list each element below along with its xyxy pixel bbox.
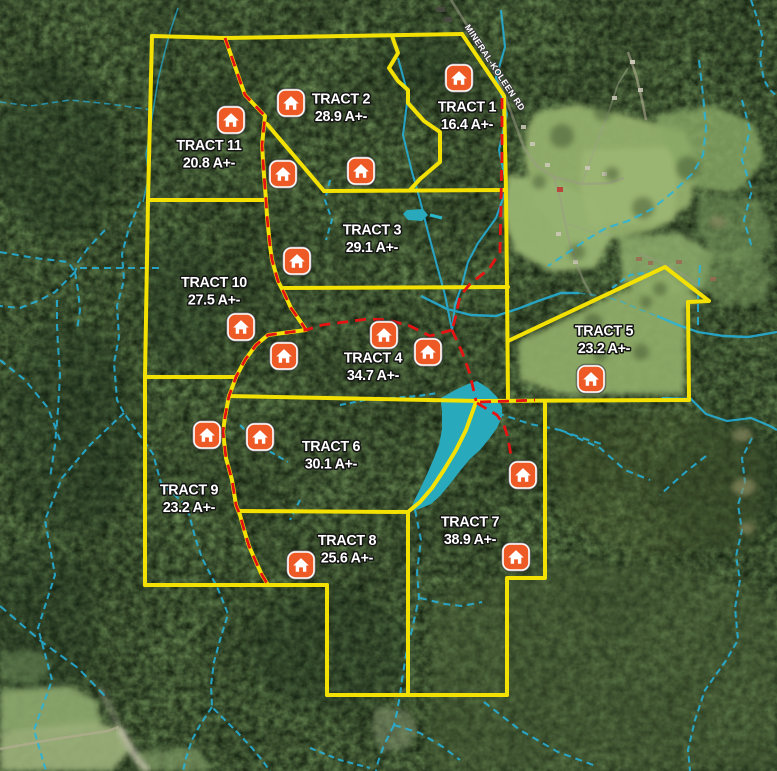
svg-text:TRACT 4: TRACT 4 <box>344 351 403 367</box>
svg-text:TRACT 11: TRACT 11 <box>176 138 241 154</box>
svg-text:TRACT 3: TRACT 3 <box>343 223 402 239</box>
svg-text:TRACT 9: TRACT 9 <box>160 483 219 499</box>
svg-text:TRACT 8: TRACT 8 <box>318 533 377 549</box>
svg-text:34.7 A+-: 34.7 A+- <box>347 368 400 384</box>
svg-text:23.2 A+-: 23.2 A+- <box>578 341 631 357</box>
svg-text:29.1 A+-: 29.1 A+- <box>346 240 399 256</box>
svg-text:27.5 A+-: 27.5 A+- <box>188 293 241 309</box>
svg-text:TRACT 5: TRACT 5 <box>575 324 634 340</box>
svg-text:TRACT 7: TRACT 7 <box>441 515 500 531</box>
svg-text:25.6 A+-: 25.6 A+- <box>321 551 374 567</box>
svg-text:23.2 A+-: 23.2 A+- <box>163 500 216 516</box>
svg-text:28.9 A+-: 28.9 A+- <box>315 109 368 125</box>
svg-text:TRACT 2: TRACT 2 <box>312 92 371 108</box>
svg-text:TRACT 10: TRACT 10 <box>181 275 247 291</box>
svg-text:TRACT 1: TRACT 1 <box>438 100 497 116</box>
svg-text:20.8 A+-: 20.8 A+- <box>183 156 236 172</box>
svg-text:16.4 A+-: 16.4 A+- <box>441 117 494 133</box>
svg-text:38.9 A+-: 38.9 A+- <box>444 532 497 548</box>
svg-text:TRACT 6: TRACT 6 <box>302 439 361 455</box>
svg-text:30.1 A+-: 30.1 A+- <box>305 457 358 473</box>
